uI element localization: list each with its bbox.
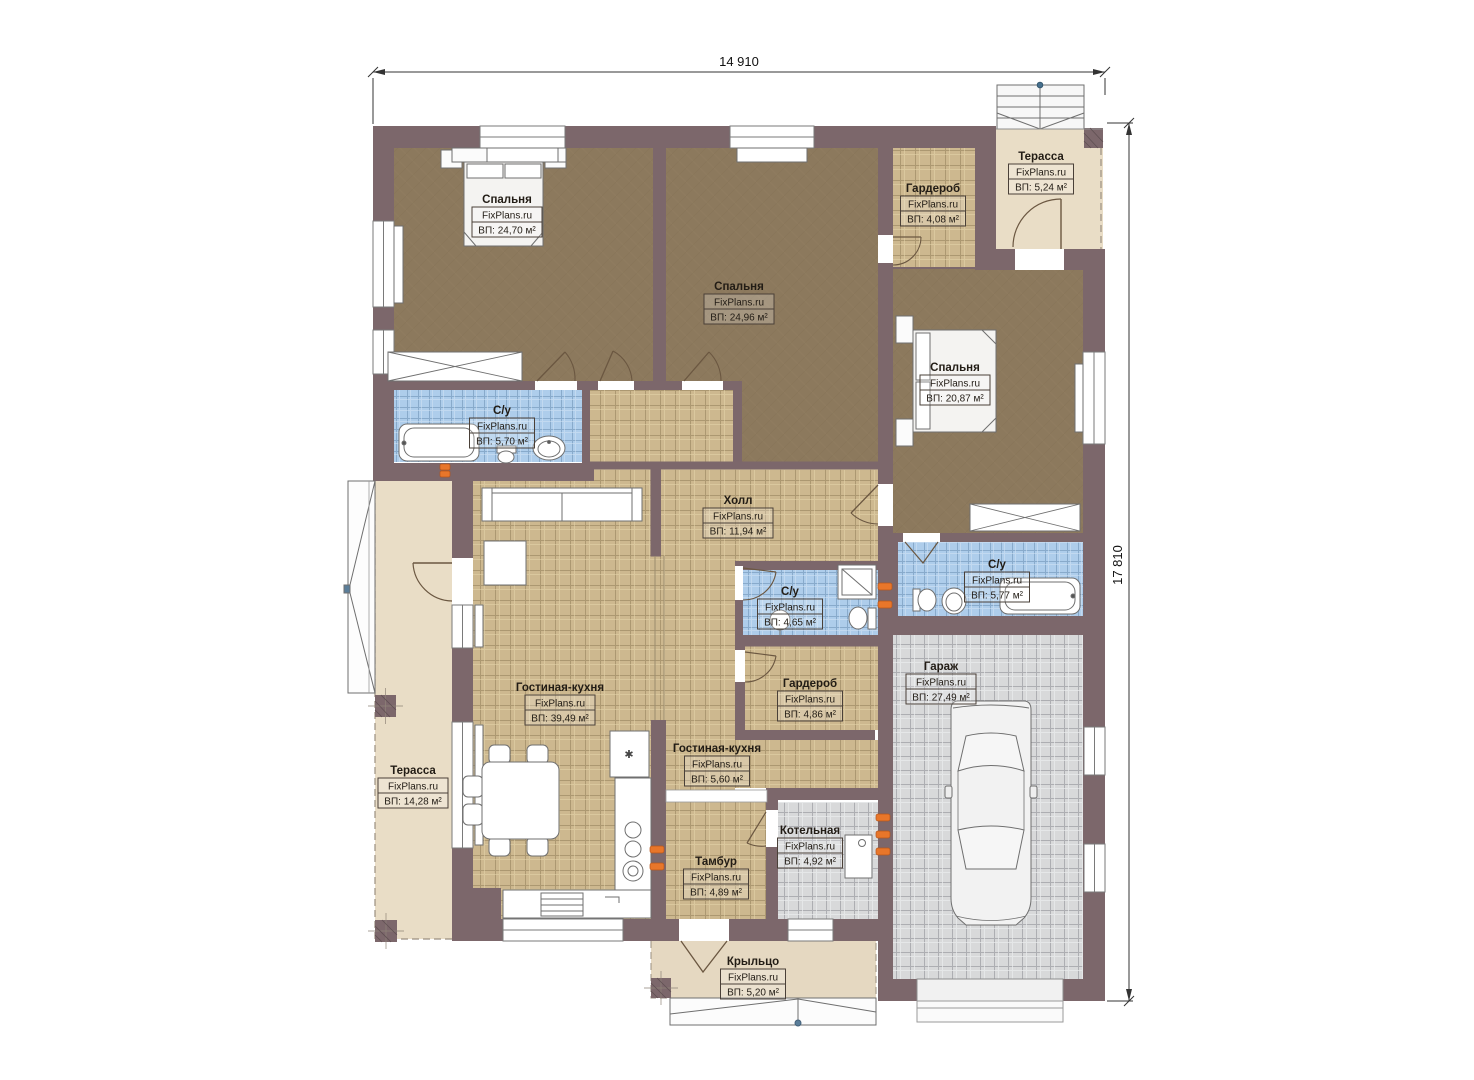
svg-text:FixPlans.ru: FixPlans.ru [535,699,585,710]
svg-text:С/у: С/у [781,586,800,598]
svg-text:Терасса: Терасса [1018,151,1064,163]
svg-text:Гостиная-кухня: Гостиная-кухня [673,743,761,755]
svg-text:ВП: 5,77 м²: ВП: 5,77 м² [971,591,1024,602]
svg-text:FixPlans.ru: FixPlans.ru [728,973,778,984]
svg-text:ВП: 4,92 м²: ВП: 4,92 м² [784,857,837,868]
svg-text:ВП: 27,49 м²: ВП: 27,49 м² [912,693,970,704]
svg-text:Гардероб: Гардероб [906,183,960,195]
svg-text:ВП: 4,65 м²: ВП: 4,65 м² [764,618,817,629]
svg-text:FixPlans.ru: FixPlans.ru [482,211,532,222]
svg-text:ВП: 4,86 м²: ВП: 4,86 м² [784,710,837,721]
svg-text:ВП: 5,70 м²: ВП: 5,70 м² [476,437,529,448]
svg-text:FixPlans.ru: FixPlans.ru [692,760,742,771]
svg-text:ВП: 24,96 м²: ВП: 24,96 м² [710,313,768,324]
svg-text:FixPlans.ru: FixPlans.ru [908,200,958,211]
svg-text:ВП: 5,24 м²: ВП: 5,24 м² [1015,183,1068,194]
svg-text:Спальня: Спальня [930,362,980,374]
svg-text:FixPlans.ru: FixPlans.ru [785,695,835,706]
svg-text:ВП: 5,60 м²: ВП: 5,60 м² [691,775,744,786]
svg-text:17 810: 17 810 [1110,545,1125,585]
svg-text:Терасса: Терасса [390,765,436,777]
svg-text:FixPlans.ru: FixPlans.ru [1016,168,1066,179]
svg-text:Тамбур: Тамбур [695,856,737,868]
svg-text:FixPlans.ru: FixPlans.ru [713,512,763,523]
svg-text:FixPlans.ru: FixPlans.ru [691,873,741,884]
svg-text:Спальня: Спальня [714,281,764,293]
svg-text:Котельная: Котельная [780,825,840,837]
svg-text:ВП: 14,28 м²: ВП: 14,28 м² [384,797,442,808]
svg-text:Гараж: Гараж [924,661,959,673]
svg-text:Спальня: Спальня [482,194,532,206]
svg-text:FixPlans.ru: FixPlans.ru [930,379,980,390]
svg-text:С/у: С/у [988,559,1007,571]
svg-text:FixPlans.ru: FixPlans.ru [785,842,835,853]
svg-text:FixPlans.ru: FixPlans.ru [972,576,1022,587]
svg-text:ВП: 24,70 м²: ВП: 24,70 м² [478,226,536,237]
svg-text:Гардероб: Гардероб [783,678,837,690]
svg-text:FixPlans.ru: FixPlans.ru [765,603,815,614]
svg-text:FixPlans.ru: FixPlans.ru [388,782,438,793]
svg-text:С/у: С/у [493,405,512,417]
svg-text:✱: ✱ [624,749,633,761]
svg-text:Крыльцо: Крыльцо [727,956,779,968]
svg-text:ВП: 11,94 м²: ВП: 11,94 м² [710,527,767,538]
svg-text:FixPlans.ru: FixPlans.ru [714,298,764,309]
svg-text:FixPlans.ru: FixPlans.ru [916,678,966,689]
svg-text:Холл: Холл [724,495,753,507]
svg-text:14 910: 14 910 [719,54,759,69]
svg-text:FixPlans.ru: FixPlans.ru [477,422,527,433]
svg-text:ВП: 39,49 м²: ВП: 39,49 м² [531,714,589,725]
svg-text:ВП: 5,20 м²: ВП: 5,20 м² [727,988,780,999]
svg-text:Гостиная-кухня: Гостиная-кухня [516,682,604,694]
svg-text:ВП: 20,87 м²: ВП: 20,87 м² [926,394,984,405]
svg-text:ВП: 4,08 м²: ВП: 4,08 м² [907,215,960,226]
svg-text:ВП: 4,89 м²: ВП: 4,89 м² [690,888,743,899]
